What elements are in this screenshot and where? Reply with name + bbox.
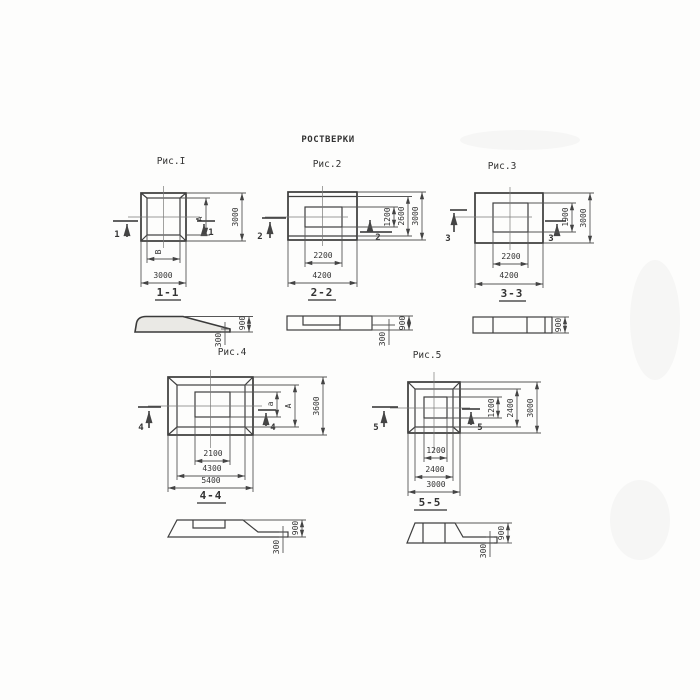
dim-text: 3000 <box>526 398 535 417</box>
dim-text: 3000 <box>411 206 420 225</box>
section-label: 1-1 <box>157 286 180 299</box>
section-profile <box>287 316 372 330</box>
bevel-line <box>408 382 415 389</box>
dim-text: 2200 <box>501 252 520 261</box>
fig4-cut-marks: 4 4 <box>138 407 276 433</box>
dim-text: 300 <box>378 332 387 347</box>
fig5-plan <box>390 372 470 452</box>
bevel-line <box>180 235 186 241</box>
dim-text: 3600 <box>312 396 321 415</box>
dim-text: В <box>154 249 163 254</box>
dim-text: 300 <box>479 544 488 559</box>
dim-text: 2400 <box>425 465 444 474</box>
cut-number: 4 <box>270 423 276 433</box>
section-profile <box>473 317 552 333</box>
dim-text: 3000 <box>153 271 172 280</box>
section-2-2: 900 300 <box>287 316 413 347</box>
section-label: 2-2 <box>311 286 334 299</box>
fig1-cut-marks: 1 1 <box>113 221 215 240</box>
scan-smudge <box>610 480 670 560</box>
fig1-dimensions: А 3000 В 3000 <box>141 193 246 287</box>
fig5-label: Рис.5 <box>413 350 442 361</box>
cut-number: 2 <box>257 232 262 242</box>
cut-number: 4 <box>138 423 144 433</box>
recess-notch <box>193 520 225 528</box>
bevel-line <box>168 427 177 435</box>
section-profile <box>407 523 497 543</box>
cut-number: 1 <box>114 230 119 240</box>
dim-text: 3000 <box>579 208 588 227</box>
dim-text: 4300 <box>202 464 221 473</box>
cut-number: 5 <box>373 423 378 433</box>
cut-number: 3 <box>445 234 450 244</box>
dim-text: 900 <box>291 521 300 536</box>
section-3-3: 900 <box>473 317 569 333</box>
dim-text: 900 <box>238 316 247 331</box>
cut-number: 1 <box>208 228 213 238</box>
recess-contour <box>424 397 447 418</box>
fig4-label: Рис.4 <box>218 347 247 358</box>
bevel-line <box>453 382 460 389</box>
grillage-drawing: РОСТВЕРКИ Рис.I 1 1 А <box>0 0 700 700</box>
recess-contour <box>195 392 230 417</box>
dim-text: 5400 <box>201 476 220 485</box>
dim-text: 1200 <box>426 446 445 455</box>
bevel-line <box>141 235 147 241</box>
dim-text: А <box>195 216 204 221</box>
fig1: Рис.I 1 1 А 3000 <box>113 156 246 300</box>
dim-text: 4200 <box>312 271 331 280</box>
section-profile <box>135 317 230 333</box>
dim-text: 2100 <box>203 449 222 458</box>
fig5-cut-marks: 5 5 <box>372 407 483 433</box>
scan-noise <box>460 130 680 560</box>
dim-text: 3000 <box>426 480 445 489</box>
inner-contour <box>493 203 528 232</box>
fig1-label: Рис.I <box>157 156 186 167</box>
scan-smudge <box>630 260 680 380</box>
section-label: 3-3 <box>501 287 524 300</box>
fig2: Рис.2 2 2 1200 2600 <box>257 159 426 300</box>
section-profile <box>168 520 288 537</box>
bevel-line <box>453 427 460 433</box>
fig4: Рис.4 4 4 а А <box>138 347 327 503</box>
dim-text: 2400 <box>506 398 515 417</box>
fig3-label: Рис.3 <box>488 161 517 172</box>
dim-text: 1200 <box>487 398 496 417</box>
dim-text: 900 <box>554 318 563 333</box>
page-title: РОСТВЕРКИ <box>301 135 354 145</box>
scanned-drawing-page: РОСТВЕРКИ Рис.I 1 1 А <box>0 0 700 700</box>
cut-number: 3 <box>548 234 553 244</box>
fig5-dimensions: 1200 2400 3000 1200 2400 3000 <box>408 382 541 496</box>
dim-text: 1900 <box>561 207 570 226</box>
bevel-line <box>245 427 253 435</box>
fig3-cut-marks: 3 3 <box>445 210 566 244</box>
dim-text: 4200 <box>499 271 518 280</box>
dim-text: а <box>266 401 275 406</box>
fig2-label: Рис.2 <box>313 159 342 170</box>
dim-text: 3000 <box>231 207 240 226</box>
section-1-1: 900 300 <box>135 316 253 348</box>
dim-text: 1200 <box>383 207 392 226</box>
section-4-4: 900 300 <box>168 520 306 554</box>
dim-text: 900 <box>497 526 506 541</box>
dim-text: А <box>284 403 293 408</box>
recess-notch <box>303 316 340 325</box>
cut-number: 5 <box>477 423 482 433</box>
dim-text: 300 <box>214 333 223 348</box>
dim-text: 300 <box>272 540 281 555</box>
fig2-plan <box>265 186 357 246</box>
dim-text: 2200 <box>313 251 332 260</box>
fig3-plan <box>455 187 543 250</box>
bevel-line <box>408 427 415 433</box>
cut-number: 2 <box>375 233 380 243</box>
section-5-5: 900 300 <box>407 523 512 558</box>
section-label: 4-4 <box>200 489 223 502</box>
dim-text: 900 <box>398 316 407 331</box>
bevel-line <box>245 377 253 385</box>
dim-text: 2600 <box>397 206 406 225</box>
bevel-line <box>168 377 177 385</box>
outer-contour <box>475 193 543 243</box>
fig5: Рис.5 5 5 1200 240 <box>372 350 541 510</box>
section-label: 5-5 <box>419 496 442 509</box>
scan-smudge <box>460 130 580 150</box>
fig3: Рис.3 3 3 1900 3000 2200 <box>445 161 594 301</box>
fig1-plan <box>128 186 200 248</box>
